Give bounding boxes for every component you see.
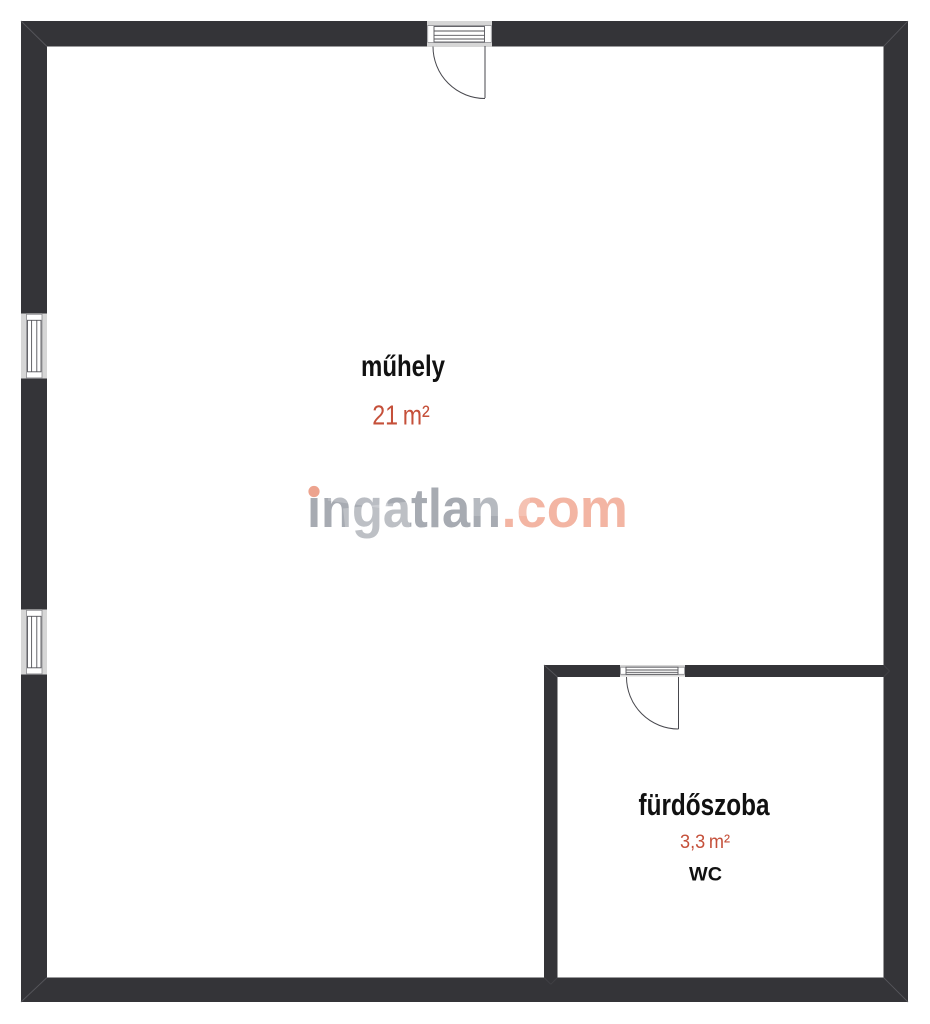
svg-text:21 m²: 21 m² [372, 400, 430, 431]
svg-text:műhely: műhely [361, 350, 445, 383]
svg-text:3,3 m²: 3,3 m² [680, 831, 730, 853]
svg-text:fürdőszoba: fürdőszoba [639, 787, 771, 822]
svg-text:WC: WC [689, 865, 722, 886]
